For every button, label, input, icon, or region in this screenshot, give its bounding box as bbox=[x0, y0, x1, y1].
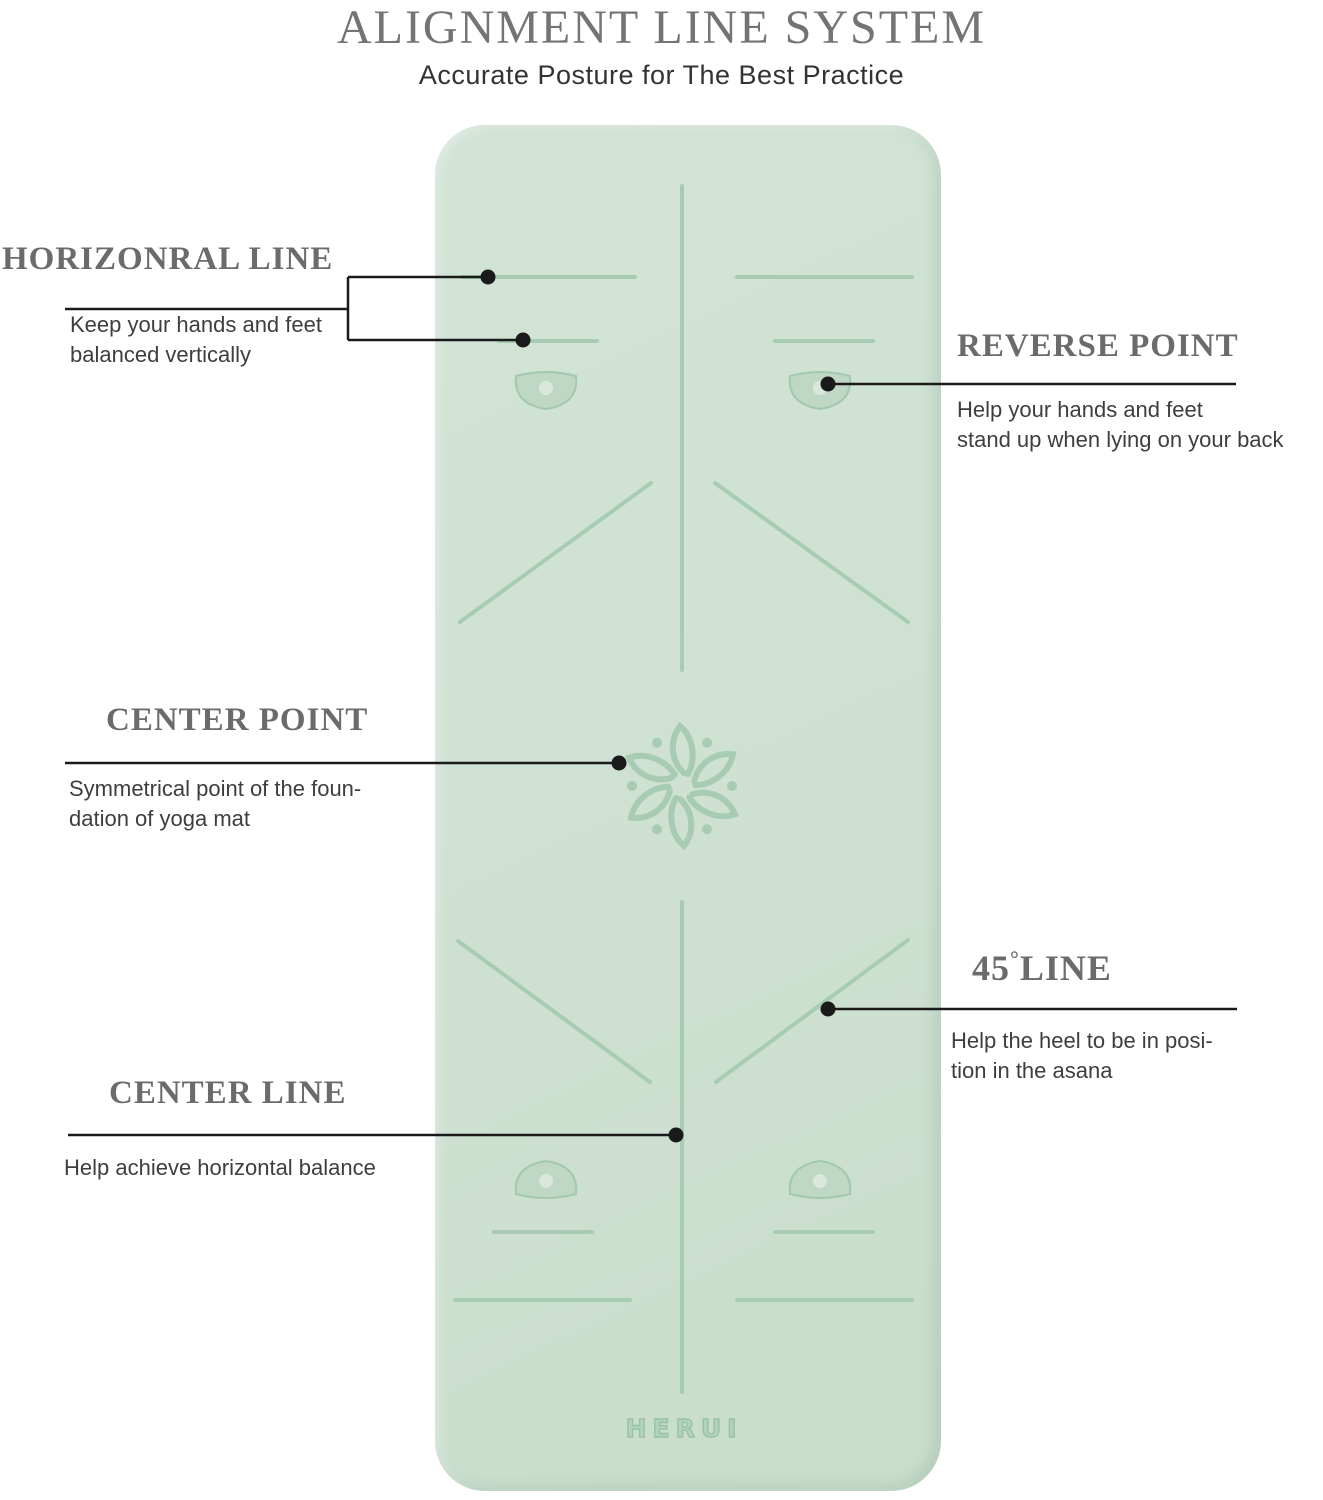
callout-title-center-line: CENTER LINE bbox=[109, 1075, 346, 1112]
desc-line: Keep your hands and feet bbox=[70, 310, 322, 340]
callout-desc-center-point: Symmetrical point of the foun- dation of… bbox=[69, 774, 361, 834]
page-title: ALIGNMENT LINE SYSTEM bbox=[0, 0, 1323, 55]
degree-number: 45 bbox=[972, 948, 1010, 988]
desc-line: Help achieve horizontal balance bbox=[64, 1153, 376, 1183]
callout-title-reverse-point: REVERSE POINT bbox=[957, 328, 1239, 365]
desc-line: Help the heel to be in posi- bbox=[951, 1026, 1213, 1056]
infographic-canvas: ALIGNMENT LINE SYSTEM Accurate Posture f… bbox=[0, 0, 1323, 1500]
callout-title-45-line: 45°LINE bbox=[972, 946, 1112, 989]
desc-line: dation of yoga mat bbox=[69, 804, 361, 834]
desc-line: tion in the asana bbox=[951, 1056, 1213, 1086]
desc-line: Symmetrical point of the foun- bbox=[69, 774, 361, 804]
desc-line: stand up when lying on your back bbox=[957, 425, 1284, 455]
degree-word: LINE bbox=[1020, 948, 1112, 988]
callout-desc-reverse-point: Help your hands and feet stand up when l… bbox=[957, 395, 1284, 455]
callout-desc-45-line: Help the heel to be in posi- tion in the… bbox=[951, 1026, 1213, 1086]
page-subtitle: Accurate Posture for The Best Practice bbox=[0, 60, 1323, 91]
mat-brand-logo: HERUI bbox=[604, 1414, 764, 1443]
callout-desc-horizontal-line: Keep your hands and feet balanced vertic… bbox=[70, 310, 322, 370]
desc-line: balanced vertically bbox=[70, 340, 322, 370]
desc-line: Help your hands and feet bbox=[957, 395, 1284, 425]
callout-title-center-point: CENTER POINT bbox=[106, 702, 368, 739]
yoga-mat bbox=[435, 125, 941, 1491]
degree-symbol: ° bbox=[1010, 946, 1020, 971]
callout-desc-center-line: Help achieve horizontal balance bbox=[64, 1153, 376, 1183]
callout-title-horizontal-line: HORIZONRAL LINE bbox=[2, 241, 333, 278]
